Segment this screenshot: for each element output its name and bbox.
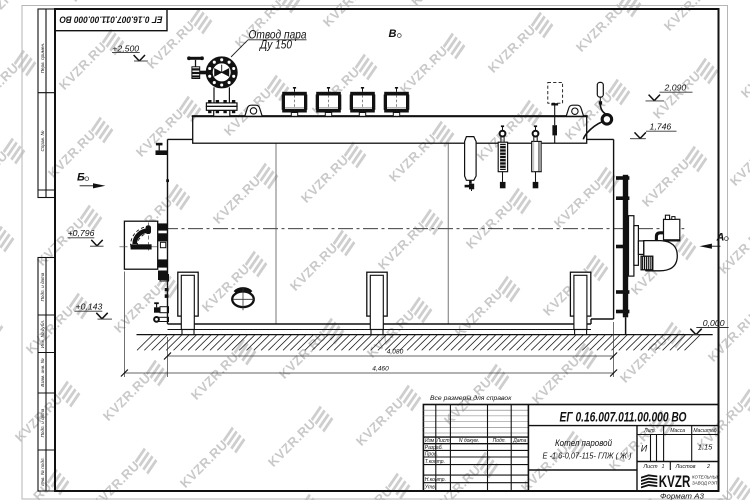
svg-text:1,746: 1,746 <box>650 122 672 132</box>
svg-text:Пров.: Пров. <box>425 452 438 458</box>
svg-text:Дата: Дата <box>512 438 526 444</box>
svg-text:1:15: 1:15 <box>698 443 713 452</box>
svg-text:Лист: Лист <box>436 438 450 444</box>
svg-text:Лист: Лист <box>642 464 658 470</box>
svg-text:И: И <box>641 444 648 454</box>
svg-text:Изм: Изм <box>425 438 435 444</box>
svg-text:Б: Б <box>77 172 85 184</box>
svg-text:2: 2 <box>706 464 710 470</box>
svg-text:N докум.: N докум. <box>459 438 479 444</box>
svg-text:4,460: 4,460 <box>372 365 389 372</box>
svg-text:1: 1 <box>661 464 664 470</box>
svg-text:Инв. № дубл.: Инв. № дубл. <box>40 320 45 348</box>
svg-text:Масса: Масса <box>670 428 685 434</box>
svg-text:Разраб.: Разраб. <box>425 445 443 451</box>
svg-text:0,000: 0,000 <box>703 318 725 328</box>
svg-text:Н.контр.: Н.контр. <box>425 477 446 483</box>
svg-text:Масштаб: Масштаб <box>693 428 717 434</box>
svg-text:Перв. примен.: Перв. примен. <box>40 43 45 74</box>
svg-text:А: А <box>716 231 725 243</box>
svg-text:КОТЕЛЬНЫЙ: КОТЕЛЬНЫЙ <box>692 475 720 480</box>
svg-text:4,080: 4,080 <box>387 349 404 356</box>
svg-text:Листов: Листов <box>674 464 695 470</box>
svg-text:Е -1,6-0,07-115- ГЛЖ ( Ж ): Е -1,6-0,07-115- ГЛЖ ( Ж ) <box>543 451 632 460</box>
svg-text:+0,796: +0,796 <box>68 228 95 238</box>
svg-text:Инв. № подл.: Инв. № подл. <box>40 457 45 486</box>
svg-text:Формат А3: Формат А3 <box>660 491 705 500</box>
svg-text:Т.контр.: Т.контр. <box>425 459 445 465</box>
svg-text:Взам. инв. №: Взам. инв. № <box>40 358 45 386</box>
svg-text:ЗАВОД РЭП: ЗАВОД РЭП <box>692 481 718 486</box>
svg-text:Утв.: Утв. <box>425 484 436 490</box>
svg-text:В: В <box>389 28 397 40</box>
svg-text:+0,143: +0,143 <box>76 301 103 311</box>
svg-text:Подп.: Подп. <box>493 438 506 444</box>
svg-text:+2,500: +2,500 <box>112 43 139 53</box>
svg-text:Ду 150: Ду 150 <box>258 39 292 51</box>
svg-text:Подп. и дата: Подп. и дата <box>40 272 45 301</box>
svg-text:ЕГ 0.16.007.011.00.000 ВО: ЕГ 0.16.007.011.00.000 ВО <box>59 13 163 24</box>
svg-text:Подп. и дата: Подп. и дата <box>40 408 45 437</box>
svg-text:Лит.: Лит. <box>643 428 656 434</box>
svg-text:ЕГ 0.16.007.011.00.000 ВО: ЕГ 0.16.007.011.00.000 ВО <box>560 408 687 424</box>
svg-text:2,090: 2,090 <box>664 83 687 93</box>
svg-text:Все размеры для справок: Все размеры для справок <box>430 394 512 402</box>
svg-text:KVZR: KVZR <box>659 472 691 491</box>
svg-text:Справ. №: Справ. № <box>40 131 45 152</box>
svg-text:Котел паровой: Котел паровой <box>555 438 613 449</box>
